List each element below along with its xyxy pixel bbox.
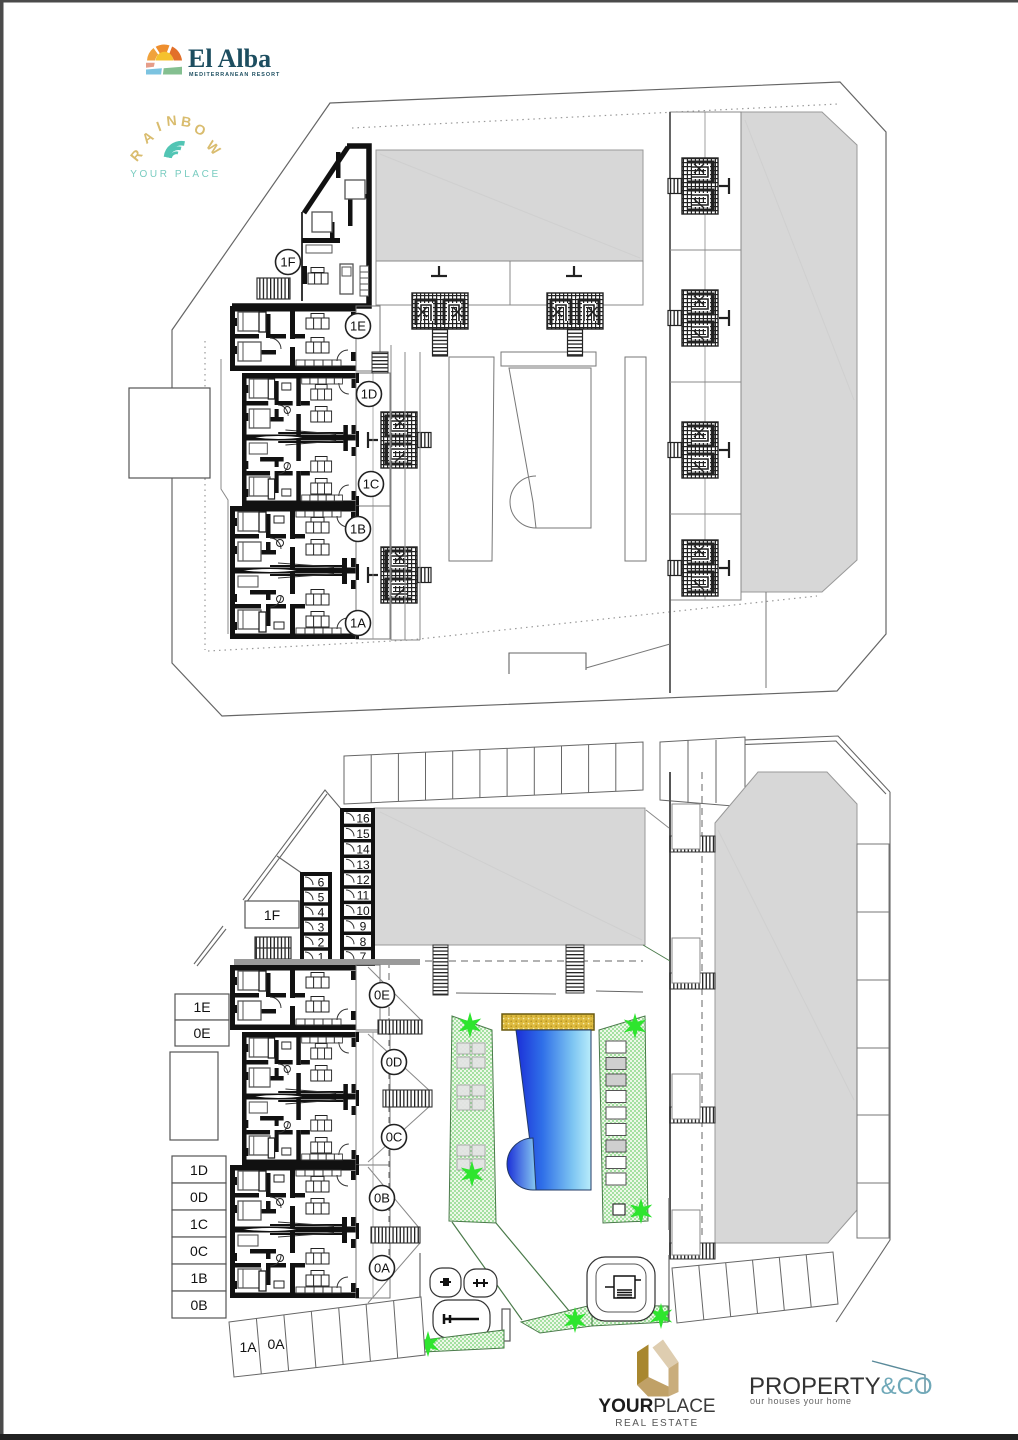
svg-text:REAL ESTATE: REAL ESTATE [615, 1418, 699, 1429]
svg-text:0B: 0B [190, 1297, 207, 1313]
svg-text:N: N [166, 112, 178, 129]
svg-text:5: 5 [318, 890, 325, 904]
svg-text:0A: 0A [374, 1261, 390, 1276]
svg-text:1D: 1D [361, 387, 378, 402]
svg-text:3: 3 [318, 920, 325, 934]
svg-text:0C: 0C [190, 1243, 208, 1259]
svg-text:9: 9 [360, 919, 367, 933]
svg-text:1B: 1B [190, 1270, 207, 1286]
svg-text:15: 15 [356, 827, 370, 841]
svg-text:MEDITERRANEAN RESORT: MEDITERRANEAN RESORT [189, 72, 280, 78]
svg-text:1D: 1D [190, 1162, 208, 1178]
svg-text:0D: 0D [386, 1055, 403, 1070]
svg-text:0E: 0E [374, 988, 390, 1003]
svg-text:0C: 0C [386, 1130, 403, 1145]
svg-text:8: 8 [360, 935, 367, 949]
svg-text:1F: 1F [280, 255, 295, 270]
svg-text:our houses your home: our houses your home [750, 1396, 852, 1406]
svg-text:4: 4 [318, 905, 325, 919]
svg-text:0D: 0D [190, 1189, 208, 1205]
svg-text:14: 14 [356, 842, 370, 856]
svg-text:10: 10 [356, 904, 370, 918]
svg-text:13: 13 [356, 858, 370, 872]
svg-text:YOUR PLACE: YOUR PLACE [130, 169, 220, 180]
svg-text:1B: 1B [350, 522, 366, 537]
svg-text:1C: 1C [190, 1216, 208, 1232]
svg-text:1E: 1E [193, 999, 210, 1015]
svg-text:0E: 0E [193, 1025, 210, 1041]
svg-text:12: 12 [356, 873, 370, 887]
svg-text:0A: 0A [267, 1336, 285, 1352]
svg-text:YOURPLACE: YOURPLACE [598, 1396, 715, 1417]
svg-text:1C: 1C [363, 477, 380, 492]
svg-text:16: 16 [356, 812, 370, 826]
svg-text:0B: 0B [374, 1191, 390, 1206]
svg-text:11: 11 [357, 889, 370, 903]
svg-text:1A: 1A [239, 1339, 257, 1355]
svg-text:1A: 1A [350, 616, 366, 631]
svg-text:1F: 1F [264, 907, 280, 923]
svg-text:1E: 1E [350, 319, 366, 334]
svg-text:2: 2 [318, 935, 325, 949]
svg-text:6: 6 [318, 875, 325, 889]
svg-text:El Alba: El Alba [188, 44, 271, 73]
